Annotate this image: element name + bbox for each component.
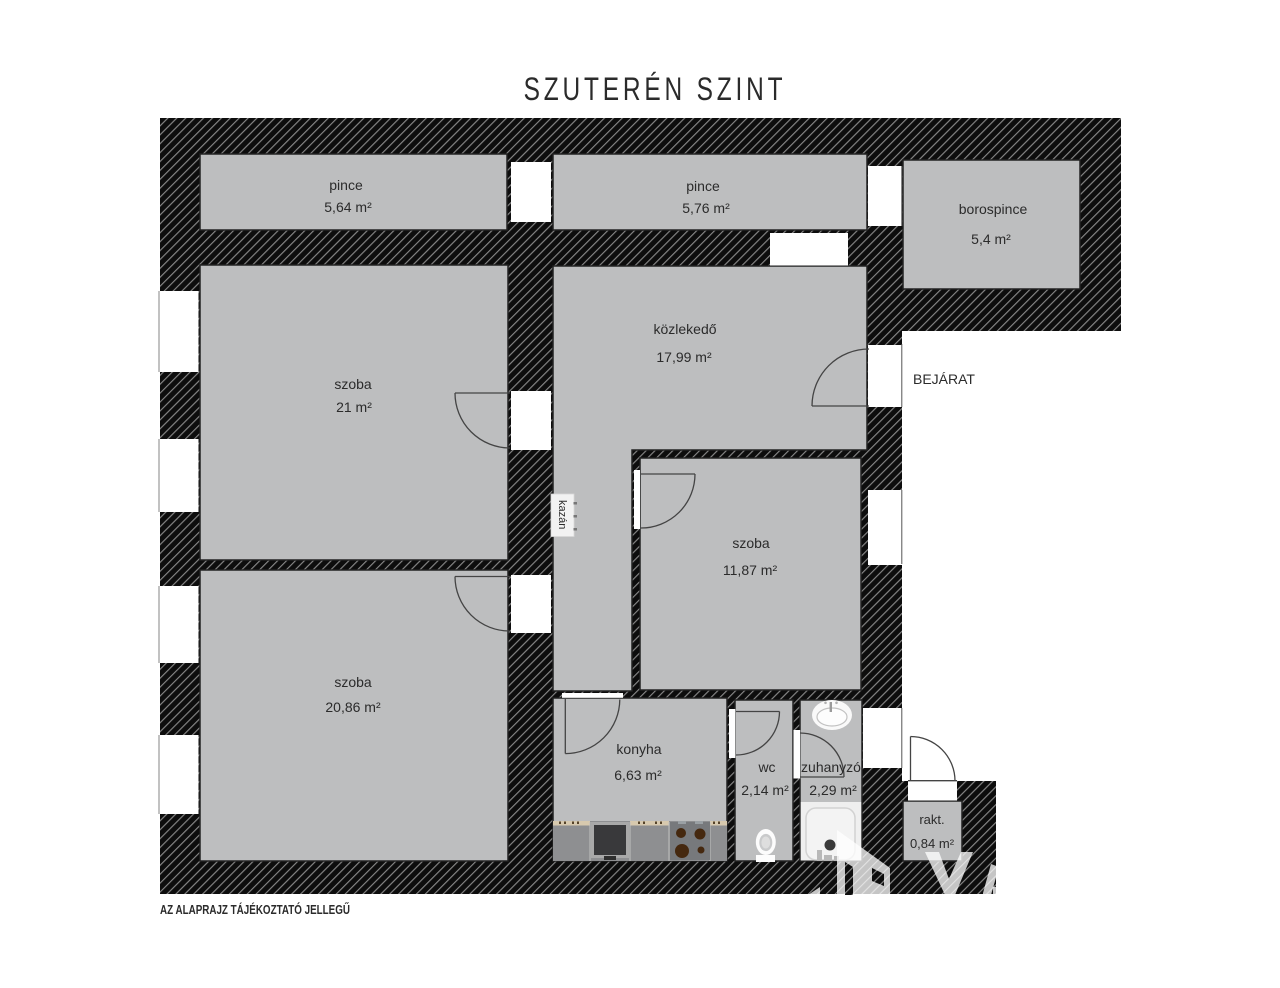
svg-text:6,63 m²: 6,63 m² bbox=[614, 767, 662, 783]
svg-text:11,87 m²: 11,87 m² bbox=[723, 562, 778, 578]
svg-text:közlekedő: közlekedő bbox=[653, 321, 716, 337]
svg-text:pince: pince bbox=[686, 178, 720, 194]
svg-text:rakt.: rakt. bbox=[919, 812, 944, 827]
svg-text:zuhanyzó: zuhanyzó bbox=[801, 759, 861, 775]
svg-text:5,64 m²: 5,64 m² bbox=[324, 199, 372, 215]
svg-text:szoba: szoba bbox=[334, 674, 372, 690]
svg-text:szoba: szoba bbox=[334, 376, 372, 392]
svg-text:AZ ALAPRAJZ TÁJÉKOZTATÓ JELLEG: AZ ALAPRAJZ TÁJÉKOZTATÓ JELLEGŰ bbox=[160, 902, 350, 917]
svg-text:konyha: konyha bbox=[616, 741, 661, 757]
svg-text:5,76 m²: 5,76 m² bbox=[682, 200, 730, 216]
svg-text:szoba: szoba bbox=[732, 535, 770, 551]
svg-text:0,84 m²: 0,84 m² bbox=[910, 836, 955, 851]
svg-text:20,86 m²: 20,86 m² bbox=[325, 699, 381, 715]
svg-text:5,4 m²: 5,4 m² bbox=[971, 231, 1011, 247]
svg-text:wc: wc bbox=[757, 759, 775, 775]
svg-text:BEJÁRAT: BEJÁRAT bbox=[913, 371, 975, 387]
svg-text:borospince: borospince bbox=[959, 201, 1028, 217]
svg-text:2,29 m²: 2,29 m² bbox=[809, 782, 857, 798]
svg-text:17,99 m²: 17,99 m² bbox=[656, 349, 712, 365]
svg-text:2,14 m²: 2,14 m² bbox=[741, 782, 789, 798]
svg-text:kazán: kazán bbox=[556, 500, 568, 529]
svg-text:21 m²: 21 m² bbox=[336, 399, 372, 415]
svg-text:pince: pince bbox=[329, 177, 363, 193]
svg-text:SZUTERÉN SZINT: SZUTERÉN SZINT bbox=[524, 72, 787, 108]
